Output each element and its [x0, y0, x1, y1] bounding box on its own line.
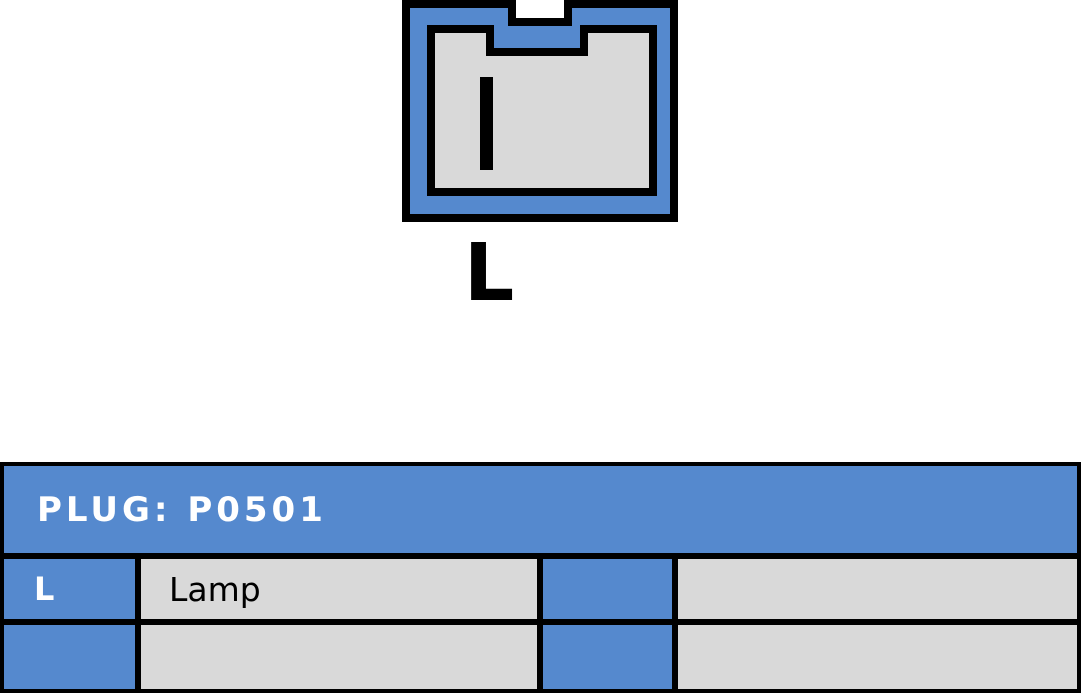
- table-row1-pin-cell: L: [4, 559, 135, 619]
- plug-table: PLUG: P0501 L Lamp: [0, 462, 1081, 693]
- connector-cavity: [431, 29, 653, 192]
- table-row2-description-cell-right: [678, 625, 1077, 689]
- connector-diagram: [398, 0, 682, 226]
- plug-table-title: PLUG: P0501: [4, 466, 1077, 553]
- table-row1-description-cell: Lamp: [141, 559, 537, 619]
- page: L PLUG: P0501 L Lamp: [0, 0, 1081, 693]
- pin-slot-L: [480, 77, 493, 170]
- table-row1-pin-cell-right: [543, 559, 672, 619]
- table-row2-pin-cell: [4, 625, 135, 689]
- table-row1-description-cell-right: [678, 559, 1077, 619]
- table-row2-description-cell: [141, 625, 537, 689]
- table-row2-pin-cell-right: [543, 625, 672, 689]
- connector-pin-label: L: [454, 233, 524, 313]
